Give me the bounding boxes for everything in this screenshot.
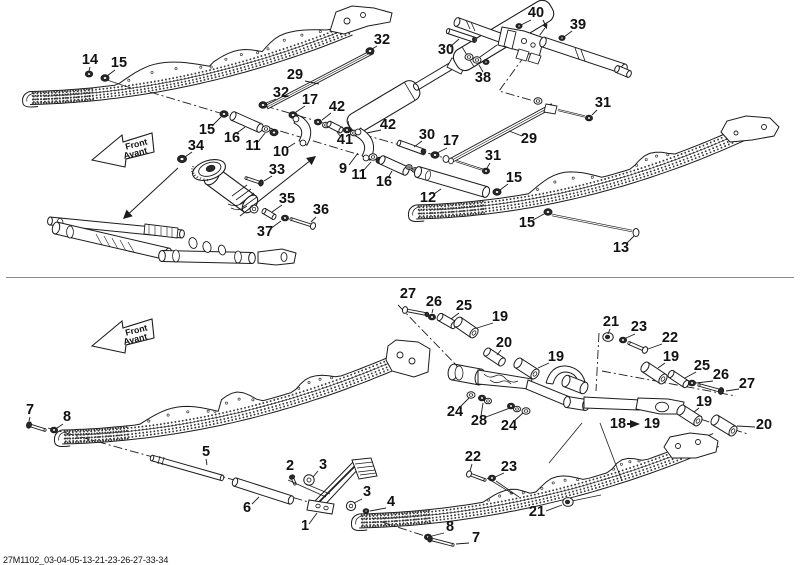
svg-text:39: 39 (570, 17, 586, 33)
svg-text:7: 7 (472, 530, 480, 546)
svg-text:23: 23 (501, 459, 517, 475)
svg-text:10: 10 (273, 144, 289, 160)
svg-text:15: 15 (199, 122, 215, 138)
svg-text:40: 40 (528, 5, 544, 21)
svg-text:36: 36 (313, 202, 329, 218)
svg-text:33: 33 (269, 162, 285, 178)
svg-text:35: 35 (279, 191, 295, 207)
svg-text:26: 26 (426, 294, 442, 310)
svg-text:13: 13 (613, 240, 629, 256)
svg-text:32: 32 (374, 32, 390, 48)
svg-text:6: 6 (243, 500, 251, 516)
svg-text:9: 9 (339, 161, 347, 177)
svg-text:27: 27 (400, 286, 416, 302)
svg-text:25: 25 (694, 358, 710, 374)
svg-text:19: 19 (492, 309, 508, 325)
svg-text:20: 20 (756, 417, 772, 433)
svg-text:15: 15 (506, 170, 522, 186)
svg-text:18: 18 (610, 416, 626, 432)
svg-text:30: 30 (438, 42, 454, 58)
svg-text:8: 8 (446, 519, 454, 535)
svg-text:16: 16 (376, 174, 392, 190)
svg-text:26: 26 (713, 367, 729, 383)
svg-text:19: 19 (696, 394, 712, 410)
svg-text:37: 37 (257, 224, 273, 240)
svg-text:42: 42 (329, 99, 345, 115)
svg-text:30: 30 (419, 127, 435, 143)
svg-text:2: 2 (286, 458, 294, 474)
svg-text:14: 14 (82, 52, 98, 68)
svg-text:20: 20 (496, 335, 512, 351)
svg-text:27M1102_03-04-05-13-21-23-26-2: 27M1102_03-04-05-13-21-23-26-27-33-34 (3, 555, 168, 565)
svg-text:29: 29 (287, 67, 303, 83)
svg-text:21: 21 (529, 504, 545, 520)
svg-text:12: 12 (420, 190, 436, 206)
svg-text:42: 42 (380, 117, 396, 133)
svg-text:27: 27 (739, 376, 755, 392)
svg-text:21: 21 (603, 314, 619, 330)
svg-text:1: 1 (301, 518, 309, 534)
svg-text:22: 22 (662, 330, 678, 346)
svg-text:31: 31 (485, 148, 501, 164)
svg-text:25: 25 (456, 298, 472, 314)
svg-text:28: 28 (471, 413, 487, 429)
svg-text:23: 23 (631, 319, 647, 335)
svg-text:11: 11 (245, 138, 260, 154)
svg-text:32: 32 (273, 85, 289, 101)
svg-text:3: 3 (319, 457, 327, 473)
svg-text:17: 17 (302, 92, 318, 108)
svg-text:34: 34 (188, 138, 204, 154)
svg-text:17: 17 (443, 133, 459, 149)
svg-text:22: 22 (465, 449, 481, 465)
svg-text:4: 4 (387, 494, 395, 510)
svg-text:3: 3 (363, 484, 371, 500)
svg-text:19: 19 (663, 349, 679, 365)
svg-text:15: 15 (519, 215, 535, 231)
svg-text:7: 7 (26, 402, 34, 418)
svg-text:29: 29 (521, 131, 537, 147)
svg-text:15: 15 (111, 55, 127, 71)
svg-text:38: 38 (475, 70, 491, 86)
svg-text:19: 19 (548, 349, 564, 365)
svg-text:8: 8 (63, 409, 71, 425)
svg-text:19: 19 (644, 416, 660, 432)
svg-text:31: 31 (595, 95, 611, 111)
svg-text:5: 5 (202, 444, 210, 460)
